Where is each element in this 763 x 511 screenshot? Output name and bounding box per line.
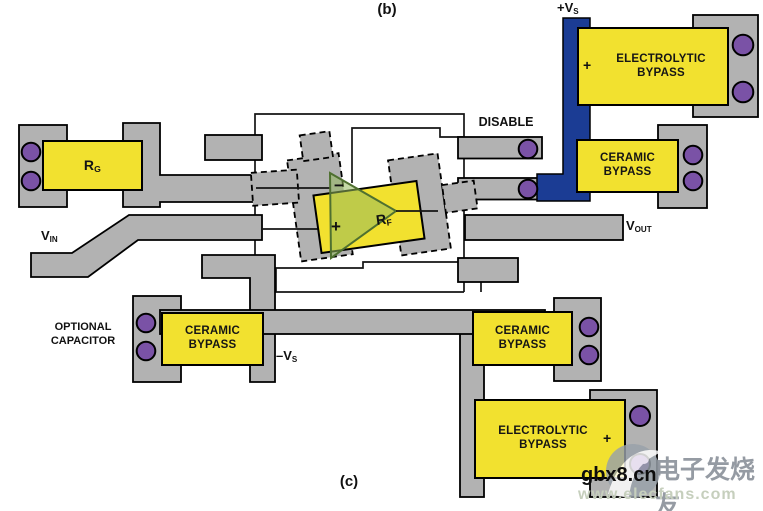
- electrolytic-top-label: ELECTROLYTIC BYPASS: [594, 28, 728, 105]
- pcb-layout-figure: (b) +VS DISABLE VOUT VIN –VS OPTIONAL CA…: [0, 0, 763, 511]
- ic-footprint-top-stub: [300, 131, 333, 161]
- panel-label-c: (c): [327, 473, 371, 490]
- ceramic-top-label: CERAMIC BYPASS: [577, 140, 678, 192]
- vout-sub: OUT: [635, 225, 652, 234]
- vout-trace: [465, 215, 623, 240]
- opamp-inverting-sign: −: [334, 177, 344, 194]
- ceramic-top-line1: CERAMIC: [600, 152, 655, 166]
- ceramic-left-label: CERAMIC BYPASS: [162, 313, 263, 365]
- via: [733, 82, 754, 103]
- disable-label: DISABLE: [462, 115, 550, 129]
- electrolytic-top-line2: BYPASS: [637, 67, 685, 81]
- output-pin-pad: [458, 258, 518, 282]
- via: [684, 172, 703, 191]
- vout-label: VOUT: [626, 218, 652, 234]
- ic-footprint-output-stub: [442, 181, 478, 213]
- ceramic-right-label: CERAMIC BYPASS: [473, 312, 572, 365]
- panel-label-b: (b): [365, 1, 409, 18]
- electrolytic-bottom-polarity: +: [603, 430, 611, 446]
- ceramic-right-line2: BYPASS: [499, 339, 547, 353]
- optional-capacitor-label: OPTIONAL CAPACITOR: [38, 321, 128, 349]
- vout-base: V: [626, 218, 635, 233]
- rg-base: RG: [84, 157, 101, 175]
- vin-sub: IN: [50, 235, 58, 244]
- via: [580, 318, 599, 337]
- rf-label: RF: [375, 210, 393, 229]
- pos-supply-base: +V: [557, 0, 573, 15]
- via: [519, 180, 538, 199]
- rg-label: RG: [43, 141, 142, 190]
- via: [519, 140, 538, 159]
- opamp-noninverting-sign: +: [331, 218, 341, 235]
- electrolytic-bottom-line2: BYPASS: [519, 439, 567, 453]
- via: [684, 146, 703, 165]
- vin-base: V: [41, 228, 50, 243]
- via: [630, 406, 650, 426]
- neg-supply-base: –V: [276, 348, 292, 363]
- optional-capacitor-line1: OPTIONAL: [38, 321, 128, 335]
- electrolytic-top-polarity: +: [583, 57, 591, 73]
- electrolytic-top-line1: ELECTROLYTIC: [616, 53, 706, 67]
- vin-label: VIN: [41, 228, 58, 244]
- top-center-pad: [205, 135, 262, 160]
- rg-sub: G: [94, 164, 101, 174]
- ceramic-left-line2: BYPASS: [189, 339, 237, 353]
- pos-supply-sub: S: [573, 7, 578, 16]
- ceramic-left-line1: CERAMIC: [185, 325, 240, 339]
- neg-supply-sub: S: [292, 355, 297, 364]
- output-wire: [275, 262, 481, 292]
- ceramic-right-line1: CERAMIC: [495, 325, 550, 339]
- neg-supply-label: –VS: [276, 348, 297, 364]
- via: [137, 314, 156, 333]
- ground-loop-wire: [276, 268, 464, 292]
- electrolytic-bottom-line1: ELECTROLYTIC: [498, 425, 588, 439]
- via: [580, 346, 599, 365]
- watermark-site: gbx8.cn: [581, 464, 657, 487]
- pos-supply-label: +VS: [557, 0, 579, 16]
- watermark-url: www.elecfans.com: [578, 486, 737, 504]
- via: [22, 143, 41, 162]
- ceramic-top-line2: BYPASS: [604, 166, 652, 180]
- via: [22, 172, 41, 191]
- via: [733, 35, 754, 56]
- optional-capacitor-line2: CAPACITOR: [38, 335, 128, 349]
- via: [137, 342, 156, 361]
